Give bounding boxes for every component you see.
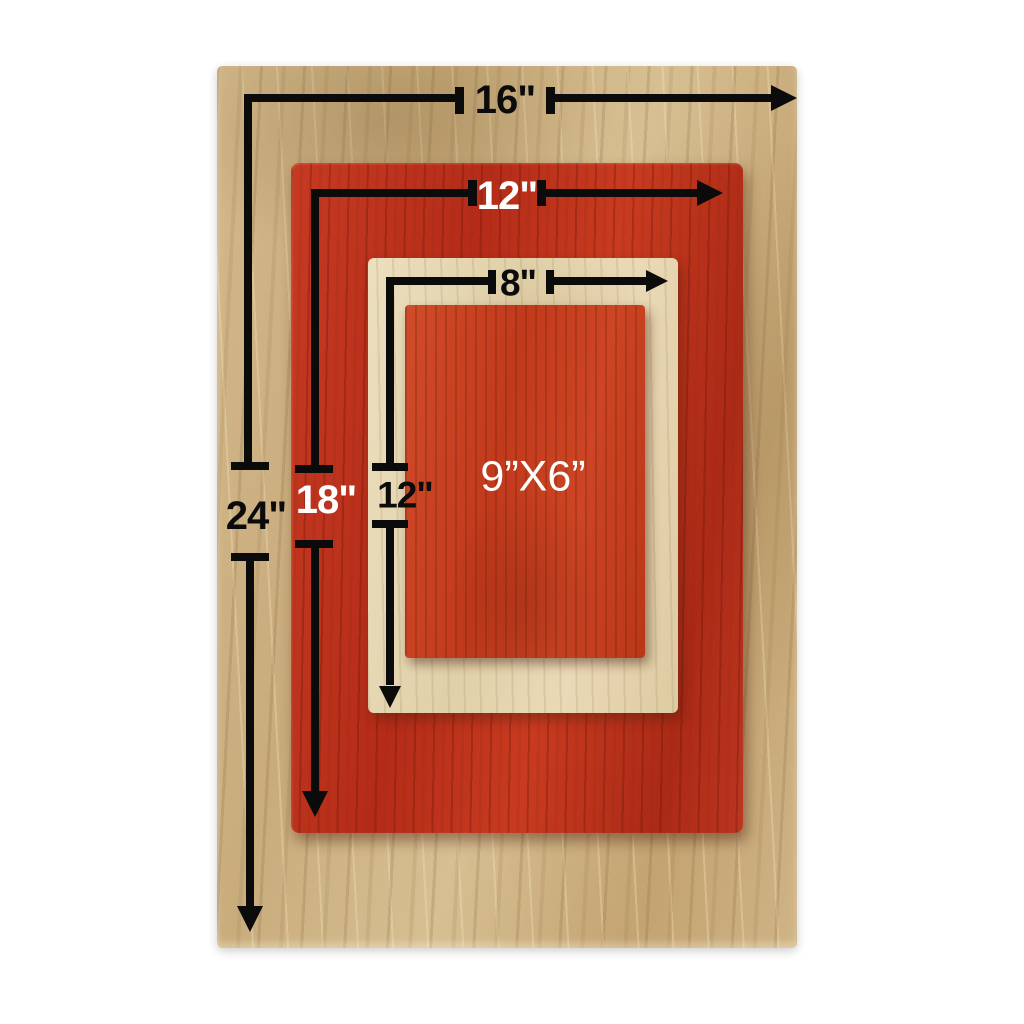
red-width-dimension-line <box>546 189 698 197</box>
red-height-dimension-line <box>311 193 319 465</box>
cream-width-dimension-line <box>554 277 646 285</box>
outer-height-dimension-line <box>246 561 254 907</box>
dimension-tick <box>468 180 477 206</box>
arrow-right-icon <box>697 180 723 206</box>
dimension-tick <box>546 270 554 294</box>
dimension-tick <box>455 87 464 114</box>
red-width-dimension-line <box>311 189 468 197</box>
product-dimension-photo: 16" 24" 12" 18" 8" 12" 9”X6” <box>0 0 1024 1024</box>
red-width-label: 12" <box>477 176 537 216</box>
arrow-down-icon <box>302 791 328 817</box>
dimension-tick <box>372 463 408 471</box>
cream-width-label: 8" <box>500 265 536 302</box>
dimension-tick <box>295 465 333 473</box>
dimension-tick <box>546 87 555 114</box>
dimension-tick <box>231 462 269 470</box>
dimension-tick <box>372 520 408 528</box>
cream-height-dimension-line <box>386 281 394 463</box>
outer-width-dimension-line <box>244 94 455 102</box>
red-height-dimension-line <box>311 548 319 791</box>
cream-height-dimension-line <box>386 528 394 685</box>
arrow-down-icon <box>237 906 263 932</box>
cream-height-label: 12" <box>377 477 433 514</box>
dimension-tick <box>295 540 333 548</box>
outer-width-label: 16" <box>475 80 535 120</box>
outer-height-label: 24" <box>226 496 286 536</box>
dimension-tick <box>537 180 546 206</box>
dimension-tick <box>231 553 269 561</box>
outer-height-dimension-line <box>244 94 252 462</box>
arrow-right-icon <box>771 85 797 111</box>
arrow-right-icon <box>646 270 668 292</box>
inner-board-size-label: 9”X6” <box>480 456 585 499</box>
outer-width-dimension-line <box>555 94 771 102</box>
dimension-tick <box>488 270 496 294</box>
red-height-label: 18" <box>296 480 356 520</box>
arrow-down-icon <box>379 686 401 708</box>
cream-width-dimension-line <box>386 277 488 285</box>
